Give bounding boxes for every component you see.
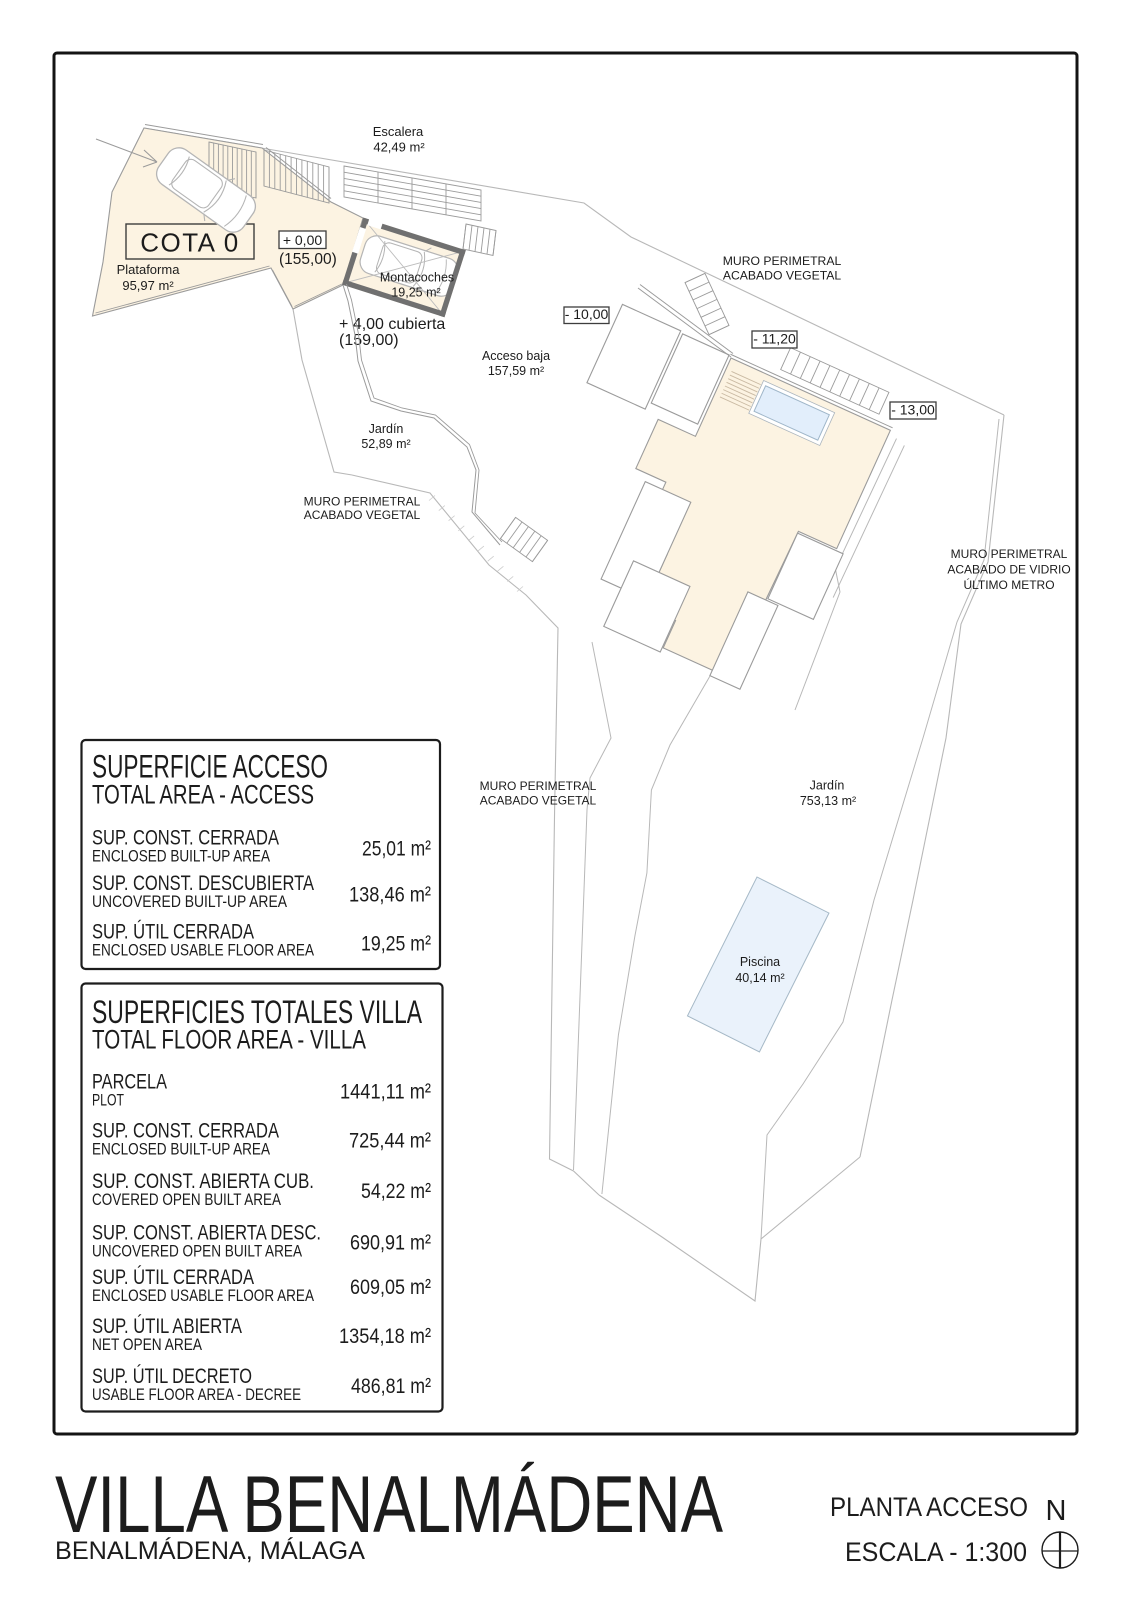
- svg-text:1441,11 m²: 1441,11 m²: [340, 1079, 431, 1103]
- svg-text:ENCLOSED USABLE FLOOR AREA: ENCLOSED USABLE FLOOR AREA: [92, 940, 315, 959]
- svg-text:TOTAL FLOOR AREA - VILLA: TOTAL FLOOR AREA - VILLA: [92, 1025, 366, 1055]
- svg-text:- 11,20: - 11,20: [753, 331, 796, 347]
- svg-text:UNCOVERED BUILT-UP AREA: UNCOVERED BUILT-UP AREA: [92, 892, 288, 911]
- svg-text:Montacoches: Montacoches: [380, 271, 454, 285]
- svg-text:MURO PERIMETRAL: MURO PERIMETRAL: [480, 779, 597, 793]
- svg-text:NET OPEN AREA: NET OPEN AREA: [92, 1335, 203, 1354]
- svg-text:TOTAL AREA - ACCESS: TOTAL AREA - ACCESS: [92, 780, 314, 810]
- svg-text:MURO PERIMETRAL: MURO PERIMETRAL: [304, 495, 421, 509]
- svg-text:BENALMÁDENA, MÁLAGA: BENALMÁDENA, MÁLAGA: [55, 1536, 365, 1565]
- svg-text:157,59 m²: 157,59 m²: [488, 364, 544, 378]
- svg-text:ESCALA - 1:300: ESCALA - 1:300: [845, 1537, 1027, 1567]
- svg-text:ACABADO DE VIDRIO: ACABADO DE VIDRIO: [947, 563, 1070, 577]
- svg-text:25,01 m²: 25,01 m²: [362, 837, 431, 861]
- svg-text:690,91 m²: 690,91 m²: [350, 1231, 431, 1255]
- svg-text:UNCOVERED OPEN BUILT AREA: UNCOVERED OPEN BUILT AREA: [92, 1242, 303, 1261]
- svg-text:+ 0,00: + 0,00: [283, 232, 323, 248]
- svg-text:725,44 m²: 725,44 m²: [349, 1128, 431, 1152]
- svg-text:486,81 m²: 486,81 m²: [351, 1374, 431, 1398]
- svg-text:ACABADO VEGETAL: ACABADO VEGETAL: [480, 794, 597, 808]
- svg-text:609,05 m²: 609,05 m²: [350, 1275, 431, 1299]
- svg-text:(155,00): (155,00): [279, 251, 337, 268]
- svg-text:USABLE FLOOR AREA - DECREE: USABLE FLOOR AREA - DECREE: [92, 1385, 301, 1404]
- svg-text:ACABADO VEGETAL: ACABADO VEGETAL: [304, 508, 421, 522]
- svg-text:COVERED OPEN BUILT AREA: COVERED OPEN BUILT AREA: [92, 1190, 282, 1209]
- svg-text:52,89 m²: 52,89 m²: [361, 437, 410, 451]
- svg-text:ENCLOSED USABLE FLOOR AREA: ENCLOSED USABLE FLOOR AREA: [92, 1286, 315, 1305]
- svg-text:753,13 m²: 753,13 m²: [800, 794, 856, 808]
- svg-text:40,14 m²: 40,14 m²: [735, 971, 784, 985]
- svg-text:- 13,00: - 13,00: [891, 402, 935, 418]
- svg-text:ÚLTIMO METRO: ÚLTIMO METRO: [963, 577, 1054, 592]
- svg-text:- 10,00: - 10,00: [565, 306, 609, 322]
- svg-text:Piscina: Piscina: [740, 955, 780, 969]
- svg-text:19,25 m²: 19,25 m²: [391, 286, 440, 300]
- svg-text:Jardín: Jardín: [810, 779, 845, 793]
- svg-text:42,49 m²: 42,49 m²: [373, 140, 425, 155]
- svg-text:(159,00): (159,00): [339, 332, 399, 349]
- svg-text:19,25 m²: 19,25 m²: [361, 932, 431, 956]
- svg-text:ACABADO VEGETAL: ACABADO VEGETAL: [723, 269, 842, 283]
- svg-text:Acceso baja: Acceso baja: [482, 349, 550, 363]
- svg-text:N: N: [1046, 1495, 1067, 1527]
- svg-text:1354,18 m²: 1354,18 m²: [339, 1324, 431, 1348]
- svg-text:95,97 m²: 95,97 m²: [122, 278, 174, 293]
- svg-text:Jardín: Jardín: [369, 422, 404, 436]
- svg-text:ENCLOSED BUILT-UP AREA: ENCLOSED BUILT-UP AREA: [92, 1139, 271, 1158]
- svg-text:PLANTA ACCESO: PLANTA ACCESO: [830, 1492, 1028, 1522]
- svg-text:PLOT: PLOT: [92, 1090, 124, 1109]
- svg-text:138,46 m²: 138,46 m²: [349, 883, 431, 907]
- svg-text:54,22 m²: 54,22 m²: [361, 1179, 431, 1203]
- svg-text:MURO PERIMETRAL: MURO PERIMETRAL: [951, 547, 1068, 561]
- svg-text:COTA 0: COTA 0: [140, 228, 240, 258]
- svg-text:Plataforma: Plataforma: [117, 262, 181, 277]
- svg-text:Escalera: Escalera: [373, 124, 424, 139]
- svg-text:ENCLOSED BUILT-UP AREA: ENCLOSED BUILT-UP AREA: [92, 846, 271, 865]
- svg-text:MURO PERIMETRAL: MURO PERIMETRAL: [723, 254, 842, 268]
